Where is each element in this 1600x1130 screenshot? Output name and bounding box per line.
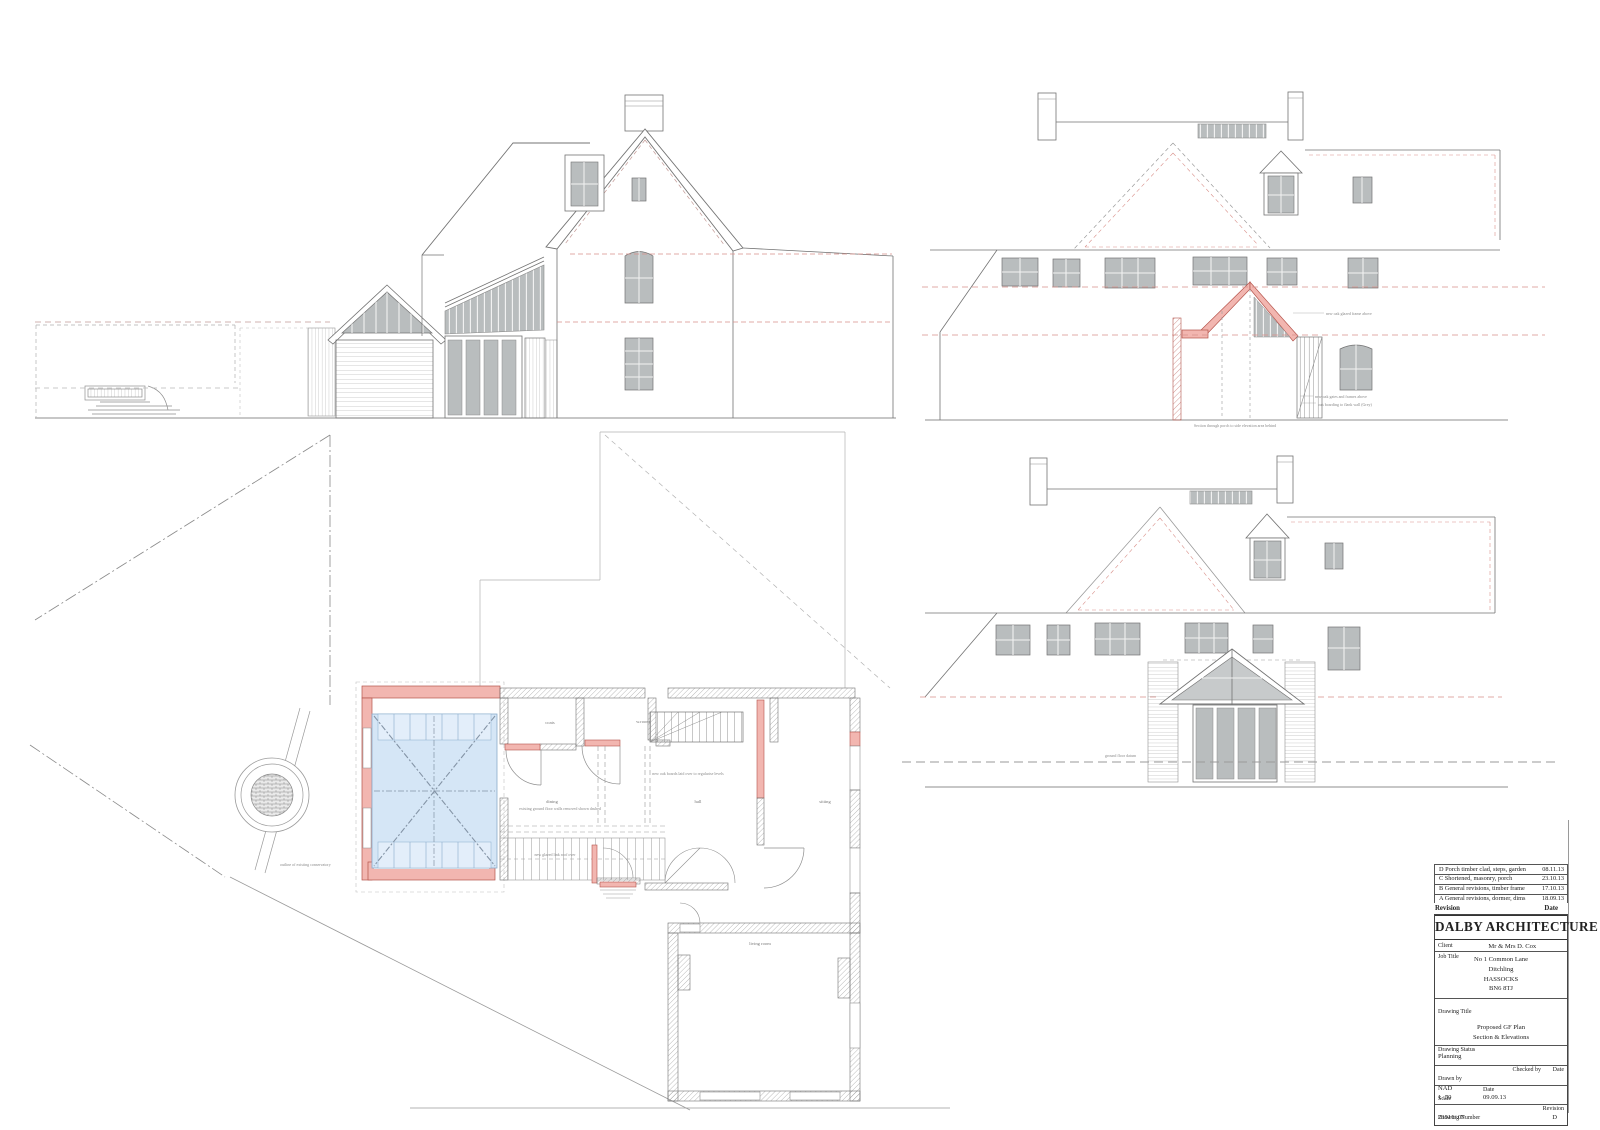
main-hip-gable [1066, 507, 1245, 613]
room-label: sitting [819, 799, 831, 804]
revision-row: B General revisions, timber frame 17.10.… [1434, 884, 1568, 894]
drawing-number-value: 23516/ 07 [1438, 1114, 1465, 1121]
client-value: Mr & Mrs D. Cox [1461, 943, 1564, 950]
revision-date: 17.10.13 [1542, 885, 1564, 893]
revision-label: Revision [1543, 1106, 1564, 1112]
dormer [1260, 151, 1302, 215]
plan-note: existing ground floor walls removed show… [519, 806, 601, 811]
drawing-sheet: { "sheet": { "colors": { "line": "#73737… [0, 0, 1600, 1130]
window-opening [363, 808, 371, 848]
new-wall [362, 686, 500, 698]
ground-floor-plan-view: outline of existing conservatory [28, 428, 953, 1113]
annotation: new oak glazed frame above [1326, 311, 1372, 316]
plan-note: outline of existing conservatory [280, 862, 331, 867]
chimney [625, 95, 663, 131]
date-label: Date [1553, 1067, 1564, 1073]
garden-wall-dashed [36, 325, 235, 418]
drawing-number-row: Drawing Number Revision 23516/ 07 D [1435, 1105, 1567, 1125]
left-hip [940, 250, 997, 420]
side-elevation-view [30, 78, 900, 428]
drawn-by-row: Drawn by Checked by Date NAD [1435, 1066, 1567, 1086]
job-address-line: HASSOCKS [1438, 975, 1564, 985]
chimney-left [1038, 93, 1056, 140]
revision-desc: B General revisions, timber frame [1439, 885, 1525, 893]
scale-date-label: Date [1483, 1087, 1494, 1093]
new-wall [362, 698, 372, 880]
sheet-border [1568, 820, 1569, 1113]
job-title-label: Job Title [1438, 954, 1459, 960]
checked-by-label: Checked by [1513, 1067, 1542, 1073]
chimney-right [1288, 92, 1303, 140]
client-row: Client Mr & Mrs D. Cox [1435, 940, 1567, 952]
glazed-link-plan [500, 838, 665, 880]
plan-drawing: outline of existing conservatory [28, 428, 953, 1113]
revision-row: A General revisions, dormer, dims 18.09.… [1434, 894, 1568, 904]
revision-table-header: Revision Date [1434, 903, 1568, 914]
living-room-walls [668, 903, 860, 1101]
roof-vent [1198, 124, 1266, 138]
job-address-line: Ditchling [1438, 965, 1564, 975]
job-title-row: Job Title No 1 Common Lane Ditchling HAS… [1435, 952, 1567, 998]
revision-desc: C Shortened, masonry, porch [1439, 875, 1512, 883]
room-label: w.room [636, 719, 650, 724]
revision-row: C Shortened, masonry, porch 23.10.13 [1434, 874, 1568, 884]
window-opening [363, 728, 371, 768]
firm-name: DALBY ARCHITECTURE [1435, 915, 1567, 940]
rear-elevation-view: ground floor datum [890, 448, 1570, 795]
upper-floor-outline [480, 432, 890, 688]
drawing-title-row: Drawing Title Proposed GF Plan Section &… [1435, 999, 1567, 1046]
scale-value: 1 :50 [1438, 1094, 1451, 1101]
revision-value: D [1552, 1114, 1557, 1121]
annotation: Section through porch to side elevation … [1194, 423, 1276, 428]
status-row: Drawing Status Planning [1435, 1046, 1567, 1066]
job-address-line: BN6 8TJ [1438, 984, 1564, 994]
stairs [650, 712, 743, 742]
room-label: coats [545, 720, 555, 725]
status-value: Planning [1438, 1053, 1564, 1060]
garden-room-new-extension [356, 682, 504, 892]
drawn-by-label: Drawn by [1438, 1076, 1462, 1082]
revision-row: D Porch timber clad, steps, garden 08.11… [1434, 864, 1568, 874]
dormer [1246, 514, 1289, 580]
title-block: D Porch timber clad, steps, garden 08.11… [1434, 864, 1568, 1126]
revision-date: 08.11.13 [1542, 866, 1564, 874]
drawing-title-label: Drawing Title [1438, 1009, 1472, 1015]
lean-to-outline [240, 328, 308, 418]
garden-steps [85, 386, 180, 414]
section-drawing: new oak glazed frame above new oak gates… [900, 83, 1570, 430]
rear-elevation-drawing: ground floor datum [890, 448, 1570, 795]
roof-vent [1190, 491, 1252, 504]
scale-row: Scale Date 1 :50 09.09.13 [1435, 1086, 1567, 1105]
date-value: 09.09.13 [1483, 1094, 1506, 1101]
side-elevation-drawing [30, 78, 900, 428]
removed-walls-dashed [500, 746, 665, 832]
date-header-label: Date [1544, 905, 1558, 912]
revision-header-label: Revision [1435, 905, 1460, 912]
drawing-title-line: Section & Elevations [1438, 1033, 1564, 1043]
chimney-left [1030, 458, 1047, 505]
garden-room-gable [328, 285, 446, 418]
new-porch-section [1173, 282, 1322, 420]
client-label: Client [1438, 943, 1453, 950]
boarded-door [525, 338, 545, 418]
annotation: ground floor datum [1105, 753, 1137, 758]
annotation: new oak gates and frames above [1315, 394, 1367, 399]
right-wing [1305, 150, 1500, 240]
room-label: living room [749, 941, 771, 946]
room-label: dining [546, 799, 558, 804]
revision-desc: D Porch timber clad, steps, garden [1439, 866, 1526, 874]
revision-table: D Porch timber clad, steps, garden 08.11… [1434, 864, 1568, 914]
chimney-right [1277, 456, 1293, 503]
well [235, 758, 309, 832]
drawing-title-line: Proposed GF Plan [1438, 1023, 1564, 1033]
plan-note: new oak boards laid over to regularise l… [652, 771, 724, 776]
right-wing [1287, 517, 1495, 613]
revision-desc: A General revisions, dormer, dims [1439, 895, 1526, 903]
title-block-box: DALBY ARCHITECTURE Client Mr & Mrs D. Co… [1434, 914, 1568, 1125]
plan-note: new glazed link roof over [534, 852, 576, 857]
boarded-wall [545, 340, 557, 418]
projected-gable [1073, 143, 1270, 250]
section-view: new oak glazed frame above new oak gates… [900, 83, 1570, 430]
annotation: oak boarding to flank wall (Grey) [1318, 402, 1373, 407]
window-row [1002, 257, 1378, 288]
room-label: hall [695, 799, 703, 804]
revision-date: 18.09.13 [1542, 895, 1564, 903]
revision-date: 23.10.13 [1542, 875, 1564, 883]
